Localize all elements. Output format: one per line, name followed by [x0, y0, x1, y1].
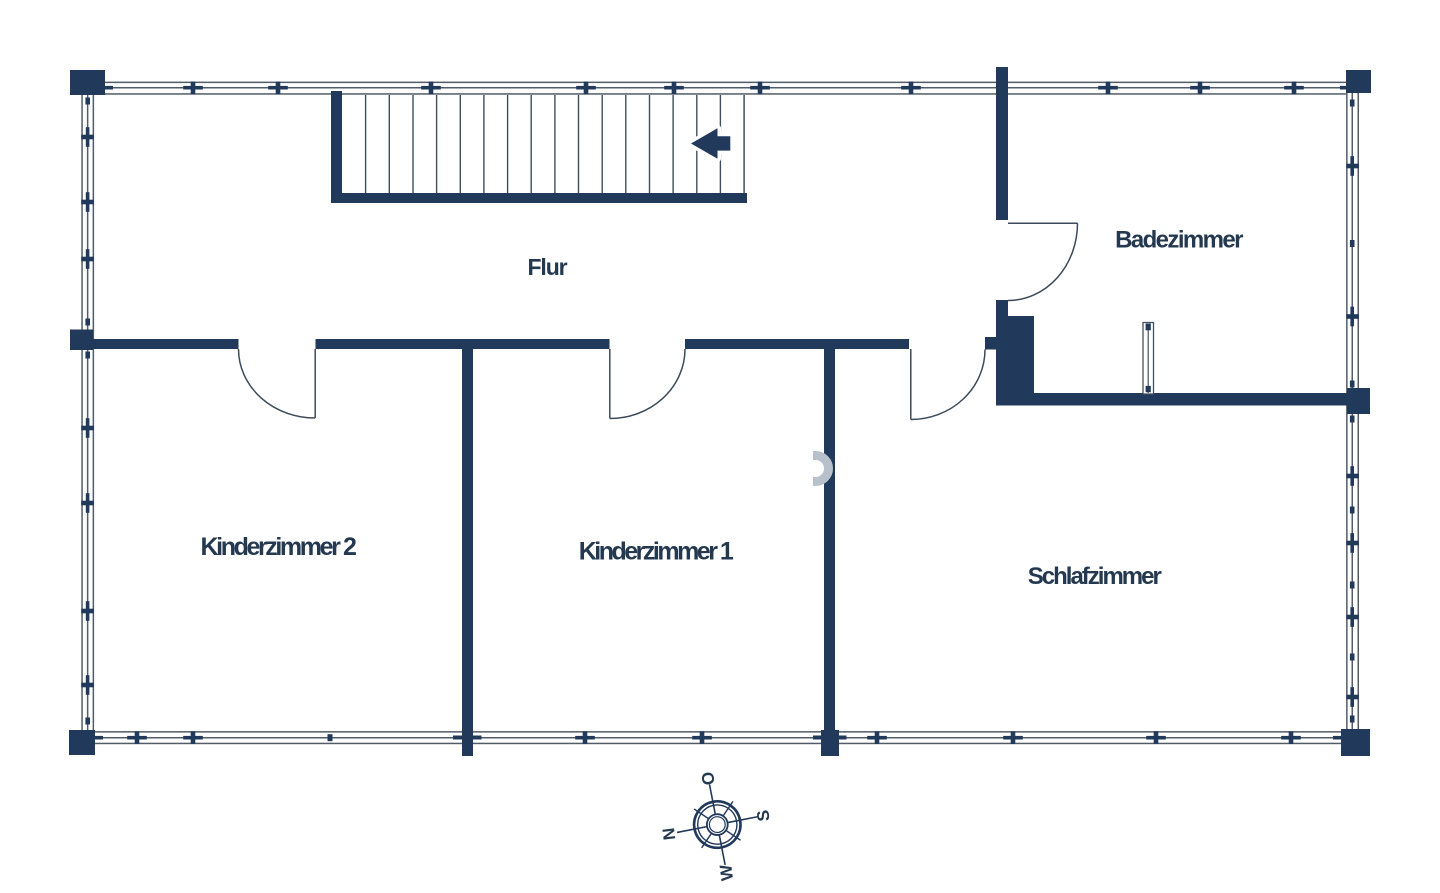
svg-text:Flur: Flur: [527, 254, 567, 280]
svg-text:N: N: [659, 827, 679, 842]
svg-text:Kinderzimmer 1: Kinderzimmer 1: [579, 538, 734, 566]
svg-text:O: O: [698, 771, 718, 786]
svg-text:Badezimmer: Badezimmer: [1115, 227, 1243, 254]
svg-text:Kinderzimmer 2: Kinderzimmer 2: [201, 533, 356, 561]
svg-text:S: S: [753, 809, 773, 823]
svg-text:Schlafzimmer: Schlafzimmer: [1028, 563, 1162, 590]
